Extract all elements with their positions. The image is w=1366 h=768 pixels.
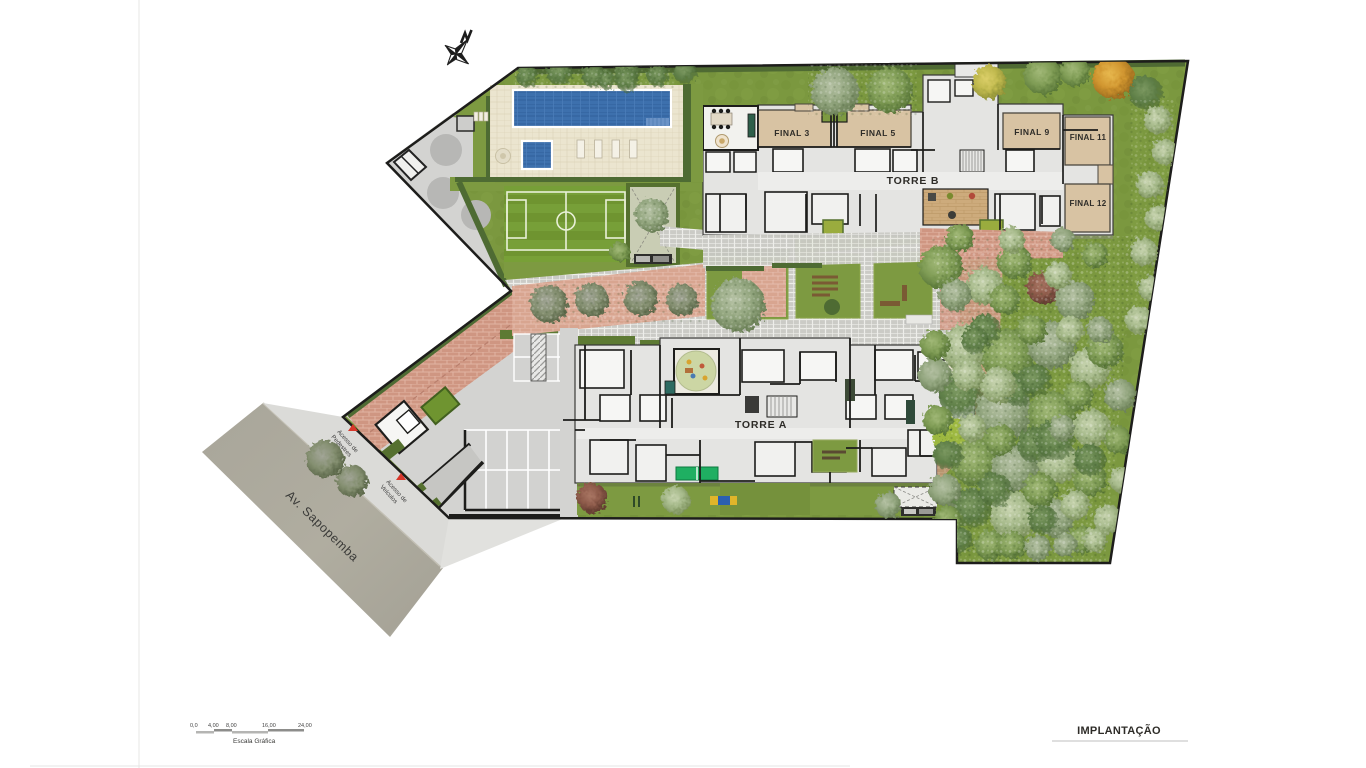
svg-text:TORRE A: TORRE A [735,419,787,431]
svg-text:FINAL 5: FINAL 5 [860,128,895,138]
svg-text:IMPLANTAÇÃO: IMPLANTAÇÃO [1077,724,1161,737]
svg-text:Escala Gráfica: Escala Gráfica [233,738,276,745]
svg-text:16,00: 16,00 [262,723,276,729]
svg-text:8,00: 8,00 [226,723,237,729]
svg-text:0,0: 0,0 [190,723,198,729]
svg-text:FINAL 3: FINAL 3 [774,128,809,138]
svg-text:TORRE B: TORRE B [887,175,940,187]
svg-text:24,00: 24,00 [298,723,312,729]
svg-text:FINAL 11: FINAL 11 [1070,133,1107,142]
svg-text:FINAL 9: FINAL 9 [1014,127,1049,137]
svg-text:4,00: 4,00 [208,723,219,729]
svg-text:FINAL 12: FINAL 12 [1070,199,1107,208]
